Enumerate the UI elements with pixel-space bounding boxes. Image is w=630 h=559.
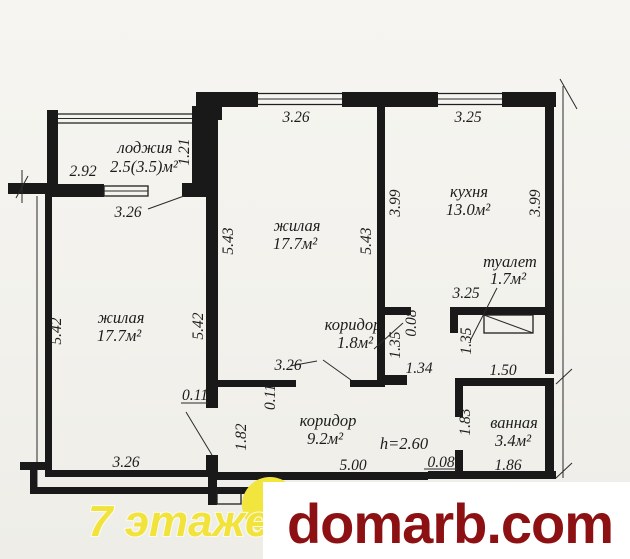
dim-kitchen-right: 3.99 xyxy=(527,189,544,217)
room-area-bathroom: 3.4м² xyxy=(494,431,532,450)
dim-hall-main-left: 1.82 xyxy=(233,423,250,450)
wall-right-lower xyxy=(545,382,554,477)
watermark-site: domarb.com xyxy=(287,492,613,555)
room-label-hall-main: коридор xyxy=(300,411,357,430)
room-area-living-left: 17.7м² xyxy=(97,326,142,345)
dim-toilet-height: 1.35 xyxy=(458,327,475,354)
dim-hall-main-bottom: 5.00 xyxy=(339,457,366,474)
wall-left-room-bottom xyxy=(45,470,213,477)
door-leaf-left-room xyxy=(186,412,212,455)
dim-jamb-kitchen: 0.08 xyxy=(403,309,420,336)
room-area-toilet: 1.7м² xyxy=(490,269,527,288)
wall-bathroom-top xyxy=(455,378,554,386)
room-area-loggia: 2.5(3.5)м² xyxy=(110,157,179,176)
room-label-loggia: лоджия xyxy=(116,138,172,157)
wall-right-upper xyxy=(545,106,554,374)
room-label-kitchen: кухня xyxy=(450,182,488,201)
room-label-living-center: жилая xyxy=(274,216,321,235)
room-area-hall-main: 9.2м² xyxy=(307,429,344,448)
wall-toilet-left xyxy=(450,315,458,333)
dim-living-center-top: 3.26 xyxy=(281,109,309,126)
dim-niche-a: 0.11 xyxy=(182,387,208,404)
dim-loggia-outer-width: 2.92 xyxy=(69,163,96,180)
room-area-kitchen: 13.0м² xyxy=(446,200,491,219)
wall-hall-bottom xyxy=(213,472,428,480)
dim-jamb-bath: 0.08 xyxy=(427,454,454,471)
wall-left-stub xyxy=(8,183,47,194)
dim-bathroom-bottom: 1.86 xyxy=(494,457,521,474)
wall-bathroom-bottom xyxy=(428,471,556,479)
wall-bathroom-left-lower xyxy=(455,450,463,471)
dim-bathroom-left: 1.83 xyxy=(457,408,474,435)
wall-top-center-pier xyxy=(342,92,438,107)
leader-loggia-dim xyxy=(148,196,184,209)
wall-loggia-bottom xyxy=(50,184,104,197)
window-loggia-sill xyxy=(104,186,148,196)
dim-living-left-left: 5.42 xyxy=(48,317,65,344)
dim-living-left-bottom: 3.26 xyxy=(111,454,139,471)
wall-kitchen-bottom-right xyxy=(450,307,545,315)
floorplan-image: лоджия 2.5(3.5)м² жилая 17.7м² кухня 13.… xyxy=(0,0,630,559)
dim-loggia-width: 3.26 xyxy=(113,204,141,221)
room-label-hall-small: коридор xyxy=(325,315,382,334)
dim-niche-b: 0.11 xyxy=(262,384,279,410)
dim-living-center-right: 5.43 xyxy=(358,227,375,254)
vent-shaft-diagonal xyxy=(484,315,533,333)
dim-living-center-bottom: 3.26 xyxy=(273,357,301,374)
floorplan-drawing: лоджия 2.5(3.5)м² жилая 17.7м² кухня 13.… xyxy=(0,0,630,559)
room-area-hall-small: 1.8м² xyxy=(337,333,374,352)
dim-kitchen-top: 3.25 xyxy=(453,109,481,126)
room-area-living-center: 17.7м² xyxy=(273,234,318,253)
dim-living-left-right: 5.42 xyxy=(190,312,207,339)
dim-hall-small-width: 1.34 xyxy=(405,360,432,377)
room-label-living-left: жилая xyxy=(98,308,145,327)
dim-loggia-depth: 1.21 xyxy=(176,138,193,165)
wall-top-left-pier xyxy=(196,92,258,107)
wall-loggia-right-step xyxy=(182,183,192,197)
window-loggia-glazing xyxy=(58,114,192,123)
dim-living-center-left: 5.43 xyxy=(220,227,237,254)
wall-center-bottom-left xyxy=(213,380,296,387)
window-center-room xyxy=(258,94,342,105)
ceiling-height-label: h=2.60 xyxy=(380,434,429,453)
tick-right-bottom xyxy=(556,463,572,478)
wall-divider-left-center xyxy=(206,106,218,408)
dim-toilet-width: 1.50 xyxy=(489,362,516,379)
dim-hall-small-height: 1.35 xyxy=(387,331,404,358)
wall-divider-foot xyxy=(385,375,407,385)
tick-right-middle xyxy=(556,369,572,384)
dim-toilet-top: 3.25 xyxy=(451,285,479,302)
wall-top-right-pier xyxy=(502,92,556,107)
room-label-bathroom: ванная xyxy=(490,413,538,432)
door-leaf-center-b xyxy=(323,360,351,380)
dim-kitchen-left: 3.99 xyxy=(387,189,404,217)
window-kitchen xyxy=(438,94,502,105)
